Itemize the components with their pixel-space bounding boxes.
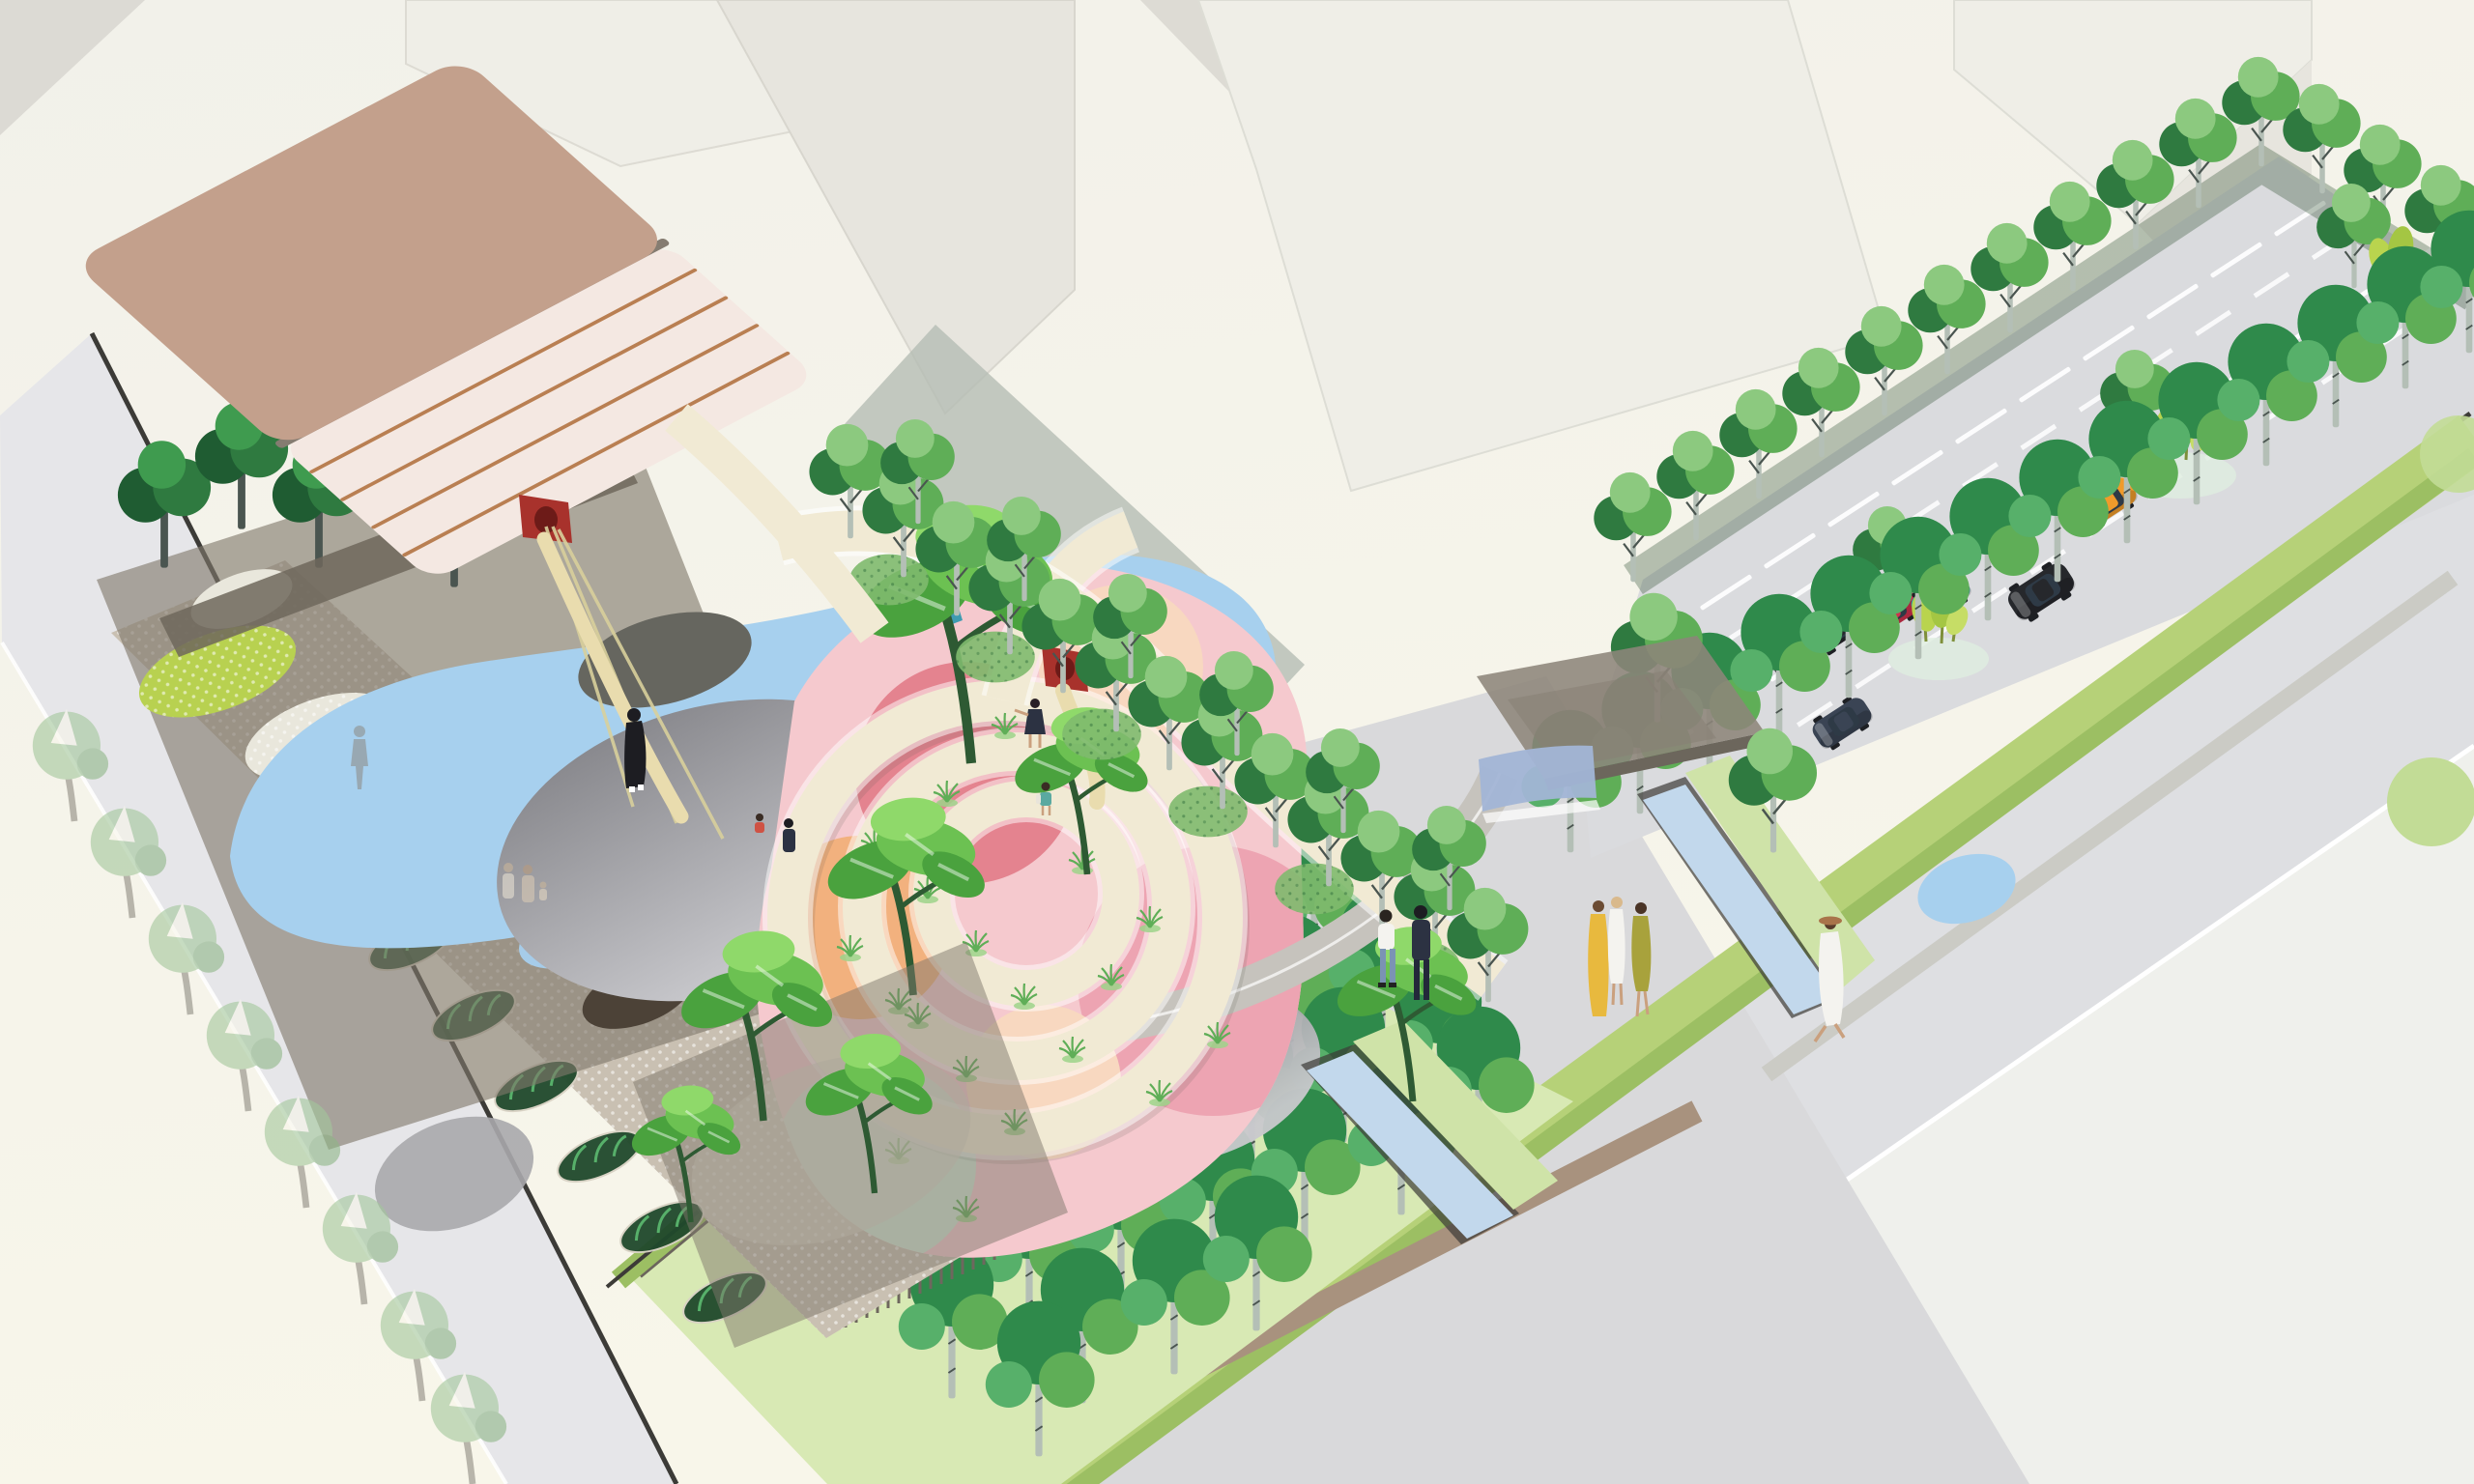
grass-tuft: [934, 781, 960, 807]
bush: [1168, 786, 1248, 838]
bush: [1062, 709, 1141, 760]
hedge-circle: [2387, 757, 2474, 846]
bush: [1275, 864, 1354, 915]
bush: [956, 632, 1035, 683]
grass-tuft: [837, 935, 863, 961]
grass-tuft: [1204, 1022, 1230, 1048]
grass-tuft: [1011, 984, 1037, 1010]
grass-tuft: [1146, 1080, 1172, 1106]
grass-tuft: [1059, 1037, 1085, 1063]
scene-canvas: [0, 0, 2474, 1484]
grass-tuft: [1098, 964, 1124, 990]
site-plan-illustration: [0, 0, 2474, 1484]
grass-tuft: [1136, 906, 1163, 932]
grass-tuft: [992, 713, 1018, 739]
